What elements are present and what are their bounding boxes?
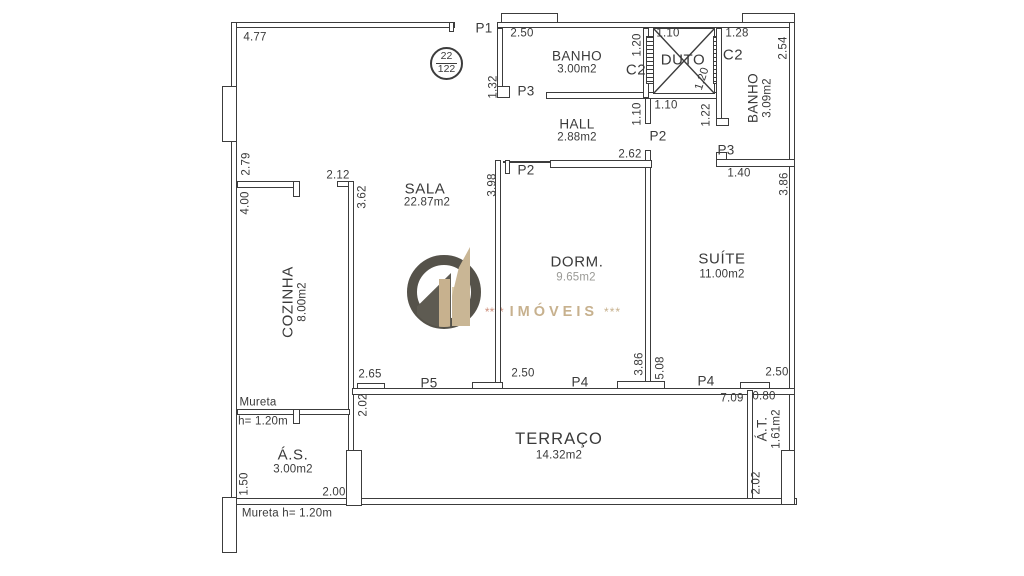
logo-bar: [439, 279, 450, 327]
unit-badge: 22 122: [430, 47, 463, 80]
dim-c2-left-height: 1.20: [632, 33, 644, 56]
room-label-duto: DUTO: [661, 53, 706, 68]
dim-dorm-bottom: 2.50: [511, 368, 534, 380]
logo-wordmark: **** IMÓVEIS ***: [485, 304, 621, 320]
room-area-suite: 11.00m2: [699, 269, 744, 281]
room-label-sala: SALA: [405, 182, 446, 197]
wall-jamb: [716, 118, 729, 126]
room-area-banho1: 3.00m2: [557, 64, 597, 76]
room-area-terraco: 14.32m2: [536, 450, 582, 462]
wall-jamb: [740, 382, 770, 389]
dim-left-upper: 2.79: [241, 152, 253, 175]
dim-banho1-height: 1.32: [488, 75, 500, 98]
room-label-c2-left: C2: [626, 63, 646, 78]
dim-at-height: 2.02: [751, 471, 763, 494]
door-label-p1: P1: [476, 21, 493, 35]
room-label-as: Á.S.: [278, 448, 309, 463]
dim-cozinha-top: 2.12: [326, 170, 349, 182]
dim-banho1-width: 2.50: [510, 28, 533, 40]
dim-at-width: 0.80: [752, 391, 775, 403]
dim-top-wall: 4.77: [243, 32, 266, 44]
dim-suite-bottom: 2.50: [765, 367, 788, 379]
wall-segment: [237, 181, 300, 188]
room-label-suite: SUÍTE: [698, 252, 745, 267]
room-area-sala: 22.87m2: [404, 197, 450, 209]
door-label-p2-hall: P2: [650, 129, 667, 143]
room-label-terraco: TERRAÇO: [515, 431, 603, 448]
lot-number: 122: [436, 63, 458, 76]
wall-pilaster: [222, 86, 237, 142]
room-label-banho1: BANHO: [552, 49, 602, 63]
door-label-p2-dorm: P2: [518, 163, 535, 177]
wall-segment: [231, 498, 797, 505]
door-label-p4-suite: P4: [698, 374, 715, 388]
dim-cozinha-height: 4.00: [240, 191, 252, 214]
logo-stars-right: ***: [604, 305, 621, 319]
wall-jamb: [357, 383, 385, 389]
room-area-dorm: 9.65m2: [556, 272, 596, 284]
dim-banho2-bottom: 1.40: [727, 168, 750, 180]
wall-jamb: [472, 382, 503, 389]
dim-terraco-left: 2.02: [358, 393, 370, 416]
wall-pillar: [346, 450, 362, 506]
dim-suite-right: 3.86: [779, 172, 791, 195]
dim-as-width: 2.00: [322, 487, 345, 499]
wall-segment: [789, 22, 795, 505]
dim-banho2-left: 1.22: [701, 103, 713, 126]
dim-suite-left: 5.08: [655, 356, 667, 379]
dim-corridor-width: 1.10: [654, 100, 677, 112]
dim-banho2-width: 1.28: [725, 28, 748, 40]
door-label-p4-dorm: P4: [572, 375, 589, 389]
dim-dorm-right: 3.86: [634, 352, 646, 375]
wall-end-tick: [449, 22, 454, 32]
wall-segment: [231, 22, 455, 28]
dim-as-height: 1.50: [239, 472, 251, 495]
logo-brand: IMÓVEIS: [510, 304, 598, 320]
wall-jamb: [617, 381, 665, 389]
dim-sala-left: 3.62: [357, 185, 369, 208]
wall-segment: [645, 98, 651, 124]
door-label-p3-banho2: P3: [718, 143, 735, 157]
unit-number: 22: [441, 51, 453, 63]
wall-step: [293, 409, 300, 424]
wall-segment: [645, 167, 651, 390]
room-label-dorm: DORM.: [551, 255, 604, 270]
room-label-banho2: BANHO: [746, 73, 760, 123]
door-label-p5: P5: [421, 376, 438, 390]
room-label-c2-right: C2: [723, 48, 743, 63]
wall-segment: [550, 160, 652, 168]
wall-stub: [222, 497, 237, 553]
wall-segment: [716, 28, 722, 120]
dim-duto-width: 1.10: [656, 28, 679, 40]
floor-plan-canvas: **** IMÓVEIS ***: [0, 0, 1024, 576]
dim-dorm-width: 2.62: [618, 149, 641, 161]
dim-sala-bottom: 2.65: [358, 369, 381, 381]
wall-segment: [716, 159, 795, 167]
room-area-cozinha: 8.00m2: [297, 282, 309, 322]
room-area-as: 3.00m2: [273, 464, 313, 476]
wall-step: [293, 181, 300, 197]
dim-hall-right: 1.10: [632, 102, 644, 125]
vent-grille: [646, 36, 654, 84]
wall-pillar: [781, 450, 795, 505]
room-area-at: 1.61m2: [771, 409, 783, 449]
note-mureta-height: h= 1.20m: [238, 416, 288, 428]
wall-jamb: [505, 160, 510, 174]
room-label-cozinha: COZINHA: [281, 266, 296, 338]
dim-terraco-width: 7.09: [720, 393, 743, 405]
dim-banho2-height: 2.54: [778, 36, 790, 59]
note-mureta: Mureta: [240, 397, 277, 409]
room-label-hall: HALL: [559, 117, 594, 131]
room-label-at: Á.T.: [755, 417, 769, 442]
room-area-hall: 2.88m2: [557, 132, 597, 144]
dim-dorm-height: 3.98: [487, 173, 499, 196]
door-label-p3-banho1: P3: [518, 84, 535, 98]
room-area-banho2: 3.09m2: [762, 78, 774, 118]
note-mureta-bottom: Mureta h= 1.20m: [242, 508, 332, 520]
